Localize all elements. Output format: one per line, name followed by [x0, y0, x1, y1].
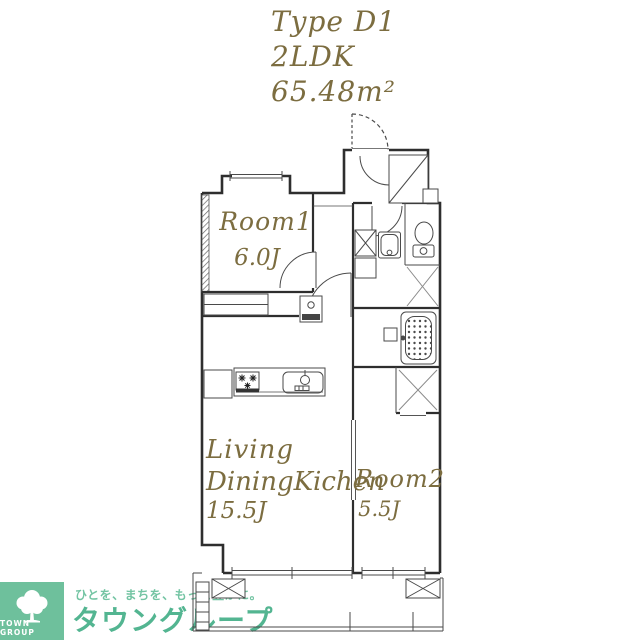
washroom [355, 230, 401, 278]
kitchen [204, 368, 325, 398]
room-labels: Room1 6.0J Living DiningKichen 15.5J Roo… [205, 207, 445, 524]
shoe-closet [389, 155, 438, 203]
ldk-size-label: 15.5J [206, 498, 268, 524]
corridor-vanity [300, 296, 322, 322]
room2-closet [396, 367, 437, 413]
room1-door [280, 252, 316, 288]
bath-door-fold [407, 267, 438, 306]
bathroom [384, 267, 438, 364]
linen-cabinet [355, 258, 376, 278]
toilet-bowl-icon [415, 222, 433, 244]
floor-plan-page: Type D12LDK65.48m² ひとを、まちを、もっと豊かに。 タウングル… [0, 0, 640, 640]
tree-icon [12, 586, 52, 626]
room2-label: Room2 [354, 465, 445, 493]
room1-size-label: 6.0J [234, 245, 282, 271]
entry-hall-door [313, 156, 389, 206]
bath-counter [384, 328, 397, 341]
room1-label: Room1 [218, 207, 313, 236]
room2-size-label: 5.5J [358, 497, 401, 521]
entrance-door [352, 114, 389, 150]
balcony [193, 573, 443, 631]
room1-closet [204, 294, 268, 315]
town-group-logo: TOWN GROUP [0, 582, 64, 640]
floor-plan-drawing: Room1 6.0J Living DiningKichen 15.5J Roo… [0, 0, 640, 640]
washbasin-icon [379, 232, 401, 258]
refrigerator-space [204, 370, 232, 398]
hatched-wall [202, 195, 209, 292]
evacuation-ladder-icon [196, 582, 209, 630]
ldk-label-line1: Living [205, 435, 294, 465]
